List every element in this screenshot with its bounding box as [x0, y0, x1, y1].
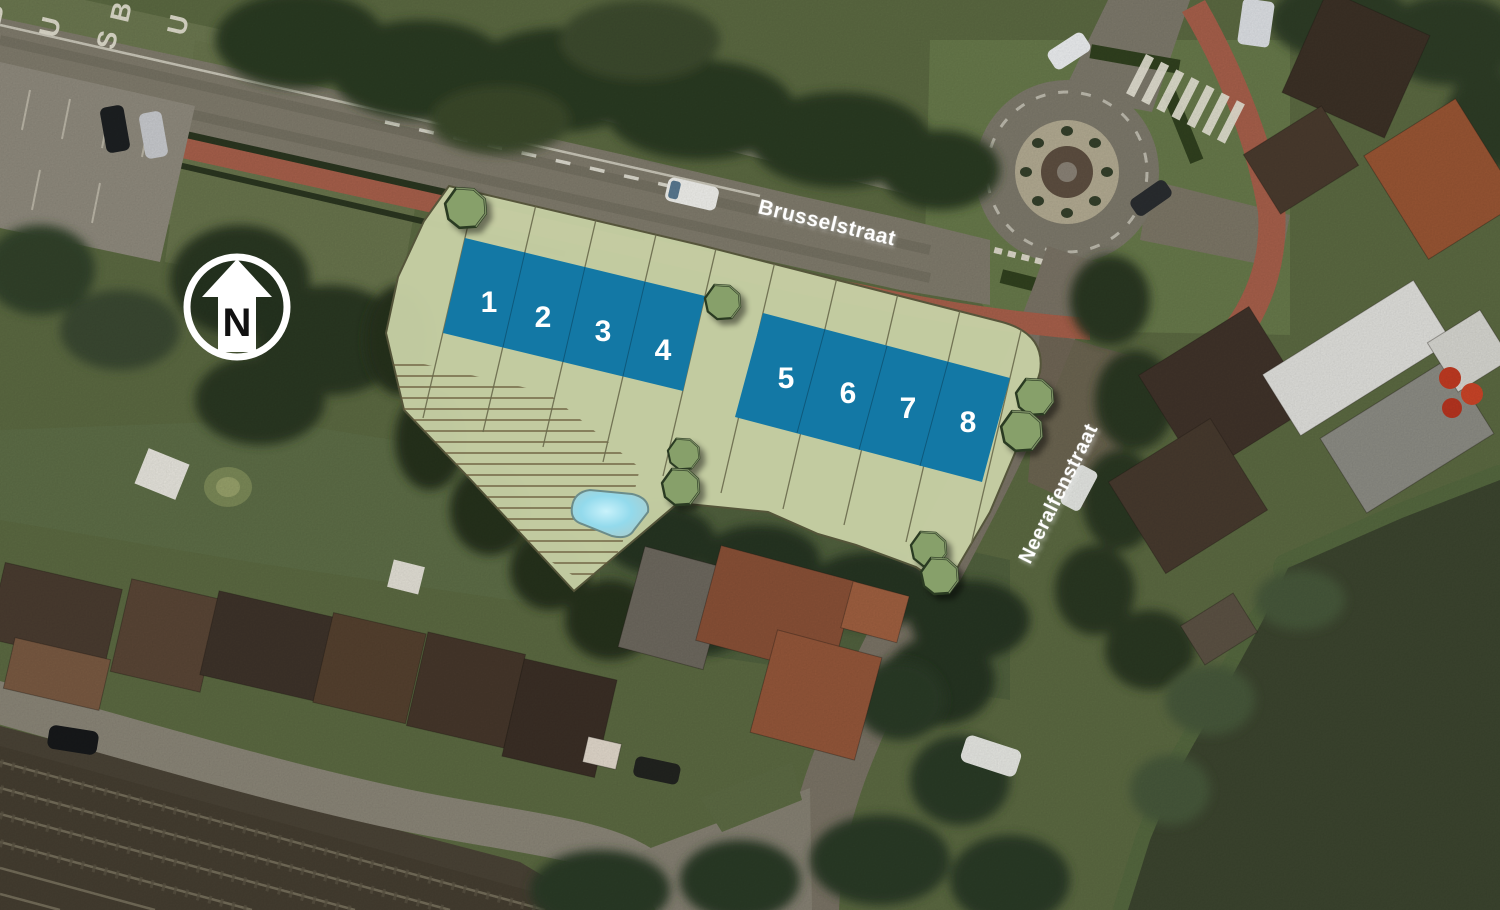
tree-icon [705, 285, 740, 319]
north-arrow-n: N [223, 301, 252, 345]
lot-1-number[interactable]: 1 [481, 286, 498, 319]
lot-6-number[interactable]: 6 [840, 377, 857, 410]
north-arrow: N [187, 257, 287, 357]
lot-7-number[interactable]: 7 [900, 392, 917, 425]
tree-icon [668, 439, 699, 470]
tree-icon [445, 188, 486, 228]
lot-2-number[interactable]: 2 [535, 301, 552, 334]
tree-icon [1001, 411, 1042, 451]
site-plan-map: B U S B U S [0, 0, 1500, 910]
lot-3-number[interactable]: 3 [595, 315, 612, 348]
lot-4-number[interactable]: 4 [655, 334, 672, 367]
lot-5-number[interactable]: 5 [778, 362, 795, 395]
tree-icon [1016, 379, 1053, 415]
lot-8-number[interactable]: 8 [960, 406, 977, 439]
tree-icon [662, 469, 699, 505]
tree-icon [921, 558, 958, 594]
site-plan-page: B U S B U S [0, 0, 1500, 910]
